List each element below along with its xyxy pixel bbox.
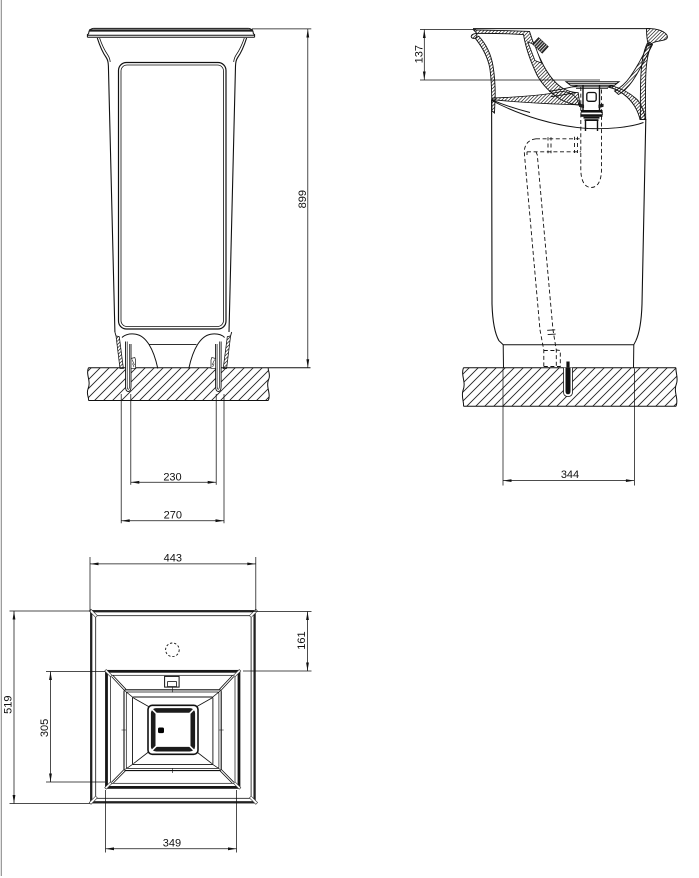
svg-text:230: 230: [163, 472, 181, 484]
svg-text:161: 161: [296, 631, 308, 649]
svg-text:137: 137: [413, 45, 425, 63]
svg-text:305: 305: [39, 719, 51, 737]
svg-text:344: 344: [561, 469, 579, 481]
svg-text:270: 270: [164, 510, 182, 522]
svg-text:349: 349: [163, 837, 181, 849]
svg-text:443: 443: [164, 552, 182, 564]
svg-text:519: 519: [3, 696, 15, 714]
svg-text:899: 899: [297, 190, 309, 208]
